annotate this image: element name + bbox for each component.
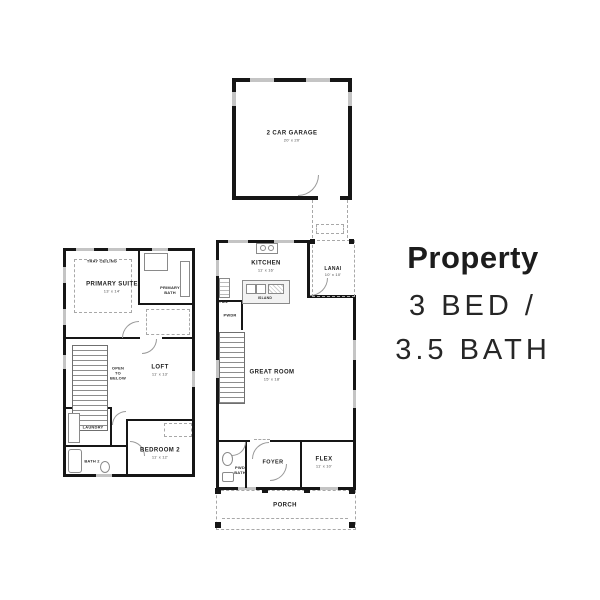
lanai-post (349, 239, 354, 244)
door-arc (112, 411, 126, 425)
porch-post (262, 488, 268, 493)
wall (126, 419, 192, 421)
room-label-pantry: PAN. (220, 300, 229, 304)
wall (241, 300, 243, 330)
window-marker (63, 309, 66, 325)
door-arc (122, 321, 139, 338)
window-marker (192, 371, 195, 387)
great-room-label: GREAT ROOM (250, 370, 295, 376)
first-floor-plan: PWDR ISLAND PAN. KITCHEN 11' x 16' LANAI… (216, 240, 356, 490)
door-arc (232, 442, 246, 456)
wall (110, 407, 112, 447)
window-marker (250, 78, 274, 82)
washer-dryer (68, 413, 80, 443)
garage-label: 2 CAR GARAGE (267, 131, 318, 137)
breezeway-step (316, 224, 344, 234)
porch-post (215, 522, 221, 528)
shower (144, 253, 168, 271)
loft-label: LOFT (151, 365, 168, 371)
lanai-dims: 10' x 10' (324, 273, 341, 278)
garage-plan: 2 CAR GARAGE 20' x 20' (232, 78, 352, 200)
entry-opening (254, 439, 270, 440)
tray-ceiling-label: TRAY CEILING (87, 259, 117, 264)
door-arc (252, 442, 269, 459)
door-arc (142, 339, 157, 354)
door-arc (270, 464, 287, 481)
bedroom2-closet (164, 423, 192, 437)
island-sink (256, 284, 266, 294)
porch-inner-line (222, 518, 348, 519)
room-label-pwdr: PWDR (223, 313, 236, 318)
room-label-flex: FLEX 11' x 10' (316, 457, 333, 470)
wall (138, 251, 140, 303)
foyer-label: FOYER (263, 460, 284, 466)
wall (162, 337, 192, 339)
room-label-primary-suite: PRIMARY SUITE 13' x 14' (86, 282, 138, 295)
window-marker (348, 92, 352, 106)
wall (245, 440, 247, 488)
porch: PORCH (216, 490, 356, 530)
dishwasher (268, 284, 284, 294)
window-marker (306, 78, 330, 82)
porch-label: PORCH (273, 502, 297, 508)
window-marker (76, 248, 94, 251)
window-marker (232, 92, 236, 106)
room-label-garage: 2 CAR GARAGE 20' x 20' (267, 131, 318, 144)
room-label-primary-bath: PRIMARY BATH (157, 285, 183, 295)
second-floor-plan: TRAY CEILING PRIMARY SUITE 13' x 14' PRI… (63, 248, 195, 477)
room-label-lanai: LANAI 10' x 10' (324, 266, 341, 278)
loft-dims: 11' x 13' (151, 373, 168, 378)
window-marker (96, 474, 112, 477)
window-marker (216, 260, 219, 276)
wall (126, 419, 128, 474)
staircase (219, 332, 245, 404)
pantry-shelves (219, 278, 230, 298)
window-marker (228, 240, 248, 243)
porch-post (349, 488, 355, 494)
property-info: Property 3 BED / 3.5 BATH (383, 240, 563, 374)
porch-outline (216, 490, 356, 530)
great-room-dims: 15' x 18' (250, 378, 295, 383)
bath-count: 3.5 BATH (383, 330, 563, 371)
bathtub (68, 449, 82, 473)
room-label-porch: PORCH (273, 502, 297, 509)
flex-label: FLEX (316, 457, 333, 463)
flex-dims: 11' x 10' (316, 465, 333, 470)
room-label-pwd-bath: PWD BATH (233, 465, 247, 475)
floorplan-image: 2 CAR GARAGE 20' x 20' (0, 0, 600, 600)
property-title: Property (383, 240, 563, 276)
wall (66, 445, 128, 447)
room-label-kitchen: KITCHEN 11' x 16' (251, 261, 280, 274)
room-label-laundry: LAUNDRY (83, 425, 104, 430)
porch-post (215, 488, 221, 494)
lanai-post (310, 239, 315, 244)
window-marker (152, 248, 168, 251)
window-marker (63, 355, 66, 369)
porch-post (349, 522, 355, 528)
wall (300, 440, 302, 488)
kitchen-dims: 11' x 16' (251, 269, 280, 274)
primary-suite-dims: 13' x 14' (86, 290, 138, 295)
range-burner (260, 245, 266, 251)
wall (270, 440, 354, 442)
room-label-loft: LOFT 11' x 13' (151, 365, 168, 378)
door-arc (298, 175, 319, 196)
open-to-below-label: OPEN TO BELOW (110, 366, 126, 381)
kitchen-label: KITCHEN (251, 261, 280, 267)
window-marker (353, 390, 356, 408)
window-marker (63, 267, 66, 283)
bed-count: 3 BED / (383, 286, 563, 327)
room-label-foyer: FOYER (263, 460, 284, 467)
porch-post (304, 488, 310, 493)
room-label-bath2: BATH 2 (84, 459, 99, 464)
room-label-bedroom2: BEDROOM 2 11' x 12' (140, 448, 180, 461)
bedroom2-dims: 11' x 12' (140, 456, 180, 461)
range-burner (268, 245, 274, 251)
island-label: ISLAND (258, 296, 272, 300)
window-marker (353, 340, 356, 360)
toilet (100, 461, 110, 473)
garage-dims: 20' x 20' (267, 139, 318, 144)
window-marker (108, 248, 126, 251)
primary-suite-label: PRIMARY SUITE (86, 282, 138, 288)
bedroom2-label: BEDROOM 2 (140, 448, 180, 454)
wall (138, 303, 192, 305)
island-sink (246, 284, 256, 294)
room-label-great-room: GREAT ROOM 15' x 18' (250, 370, 295, 383)
closet-shelving (146, 309, 190, 335)
